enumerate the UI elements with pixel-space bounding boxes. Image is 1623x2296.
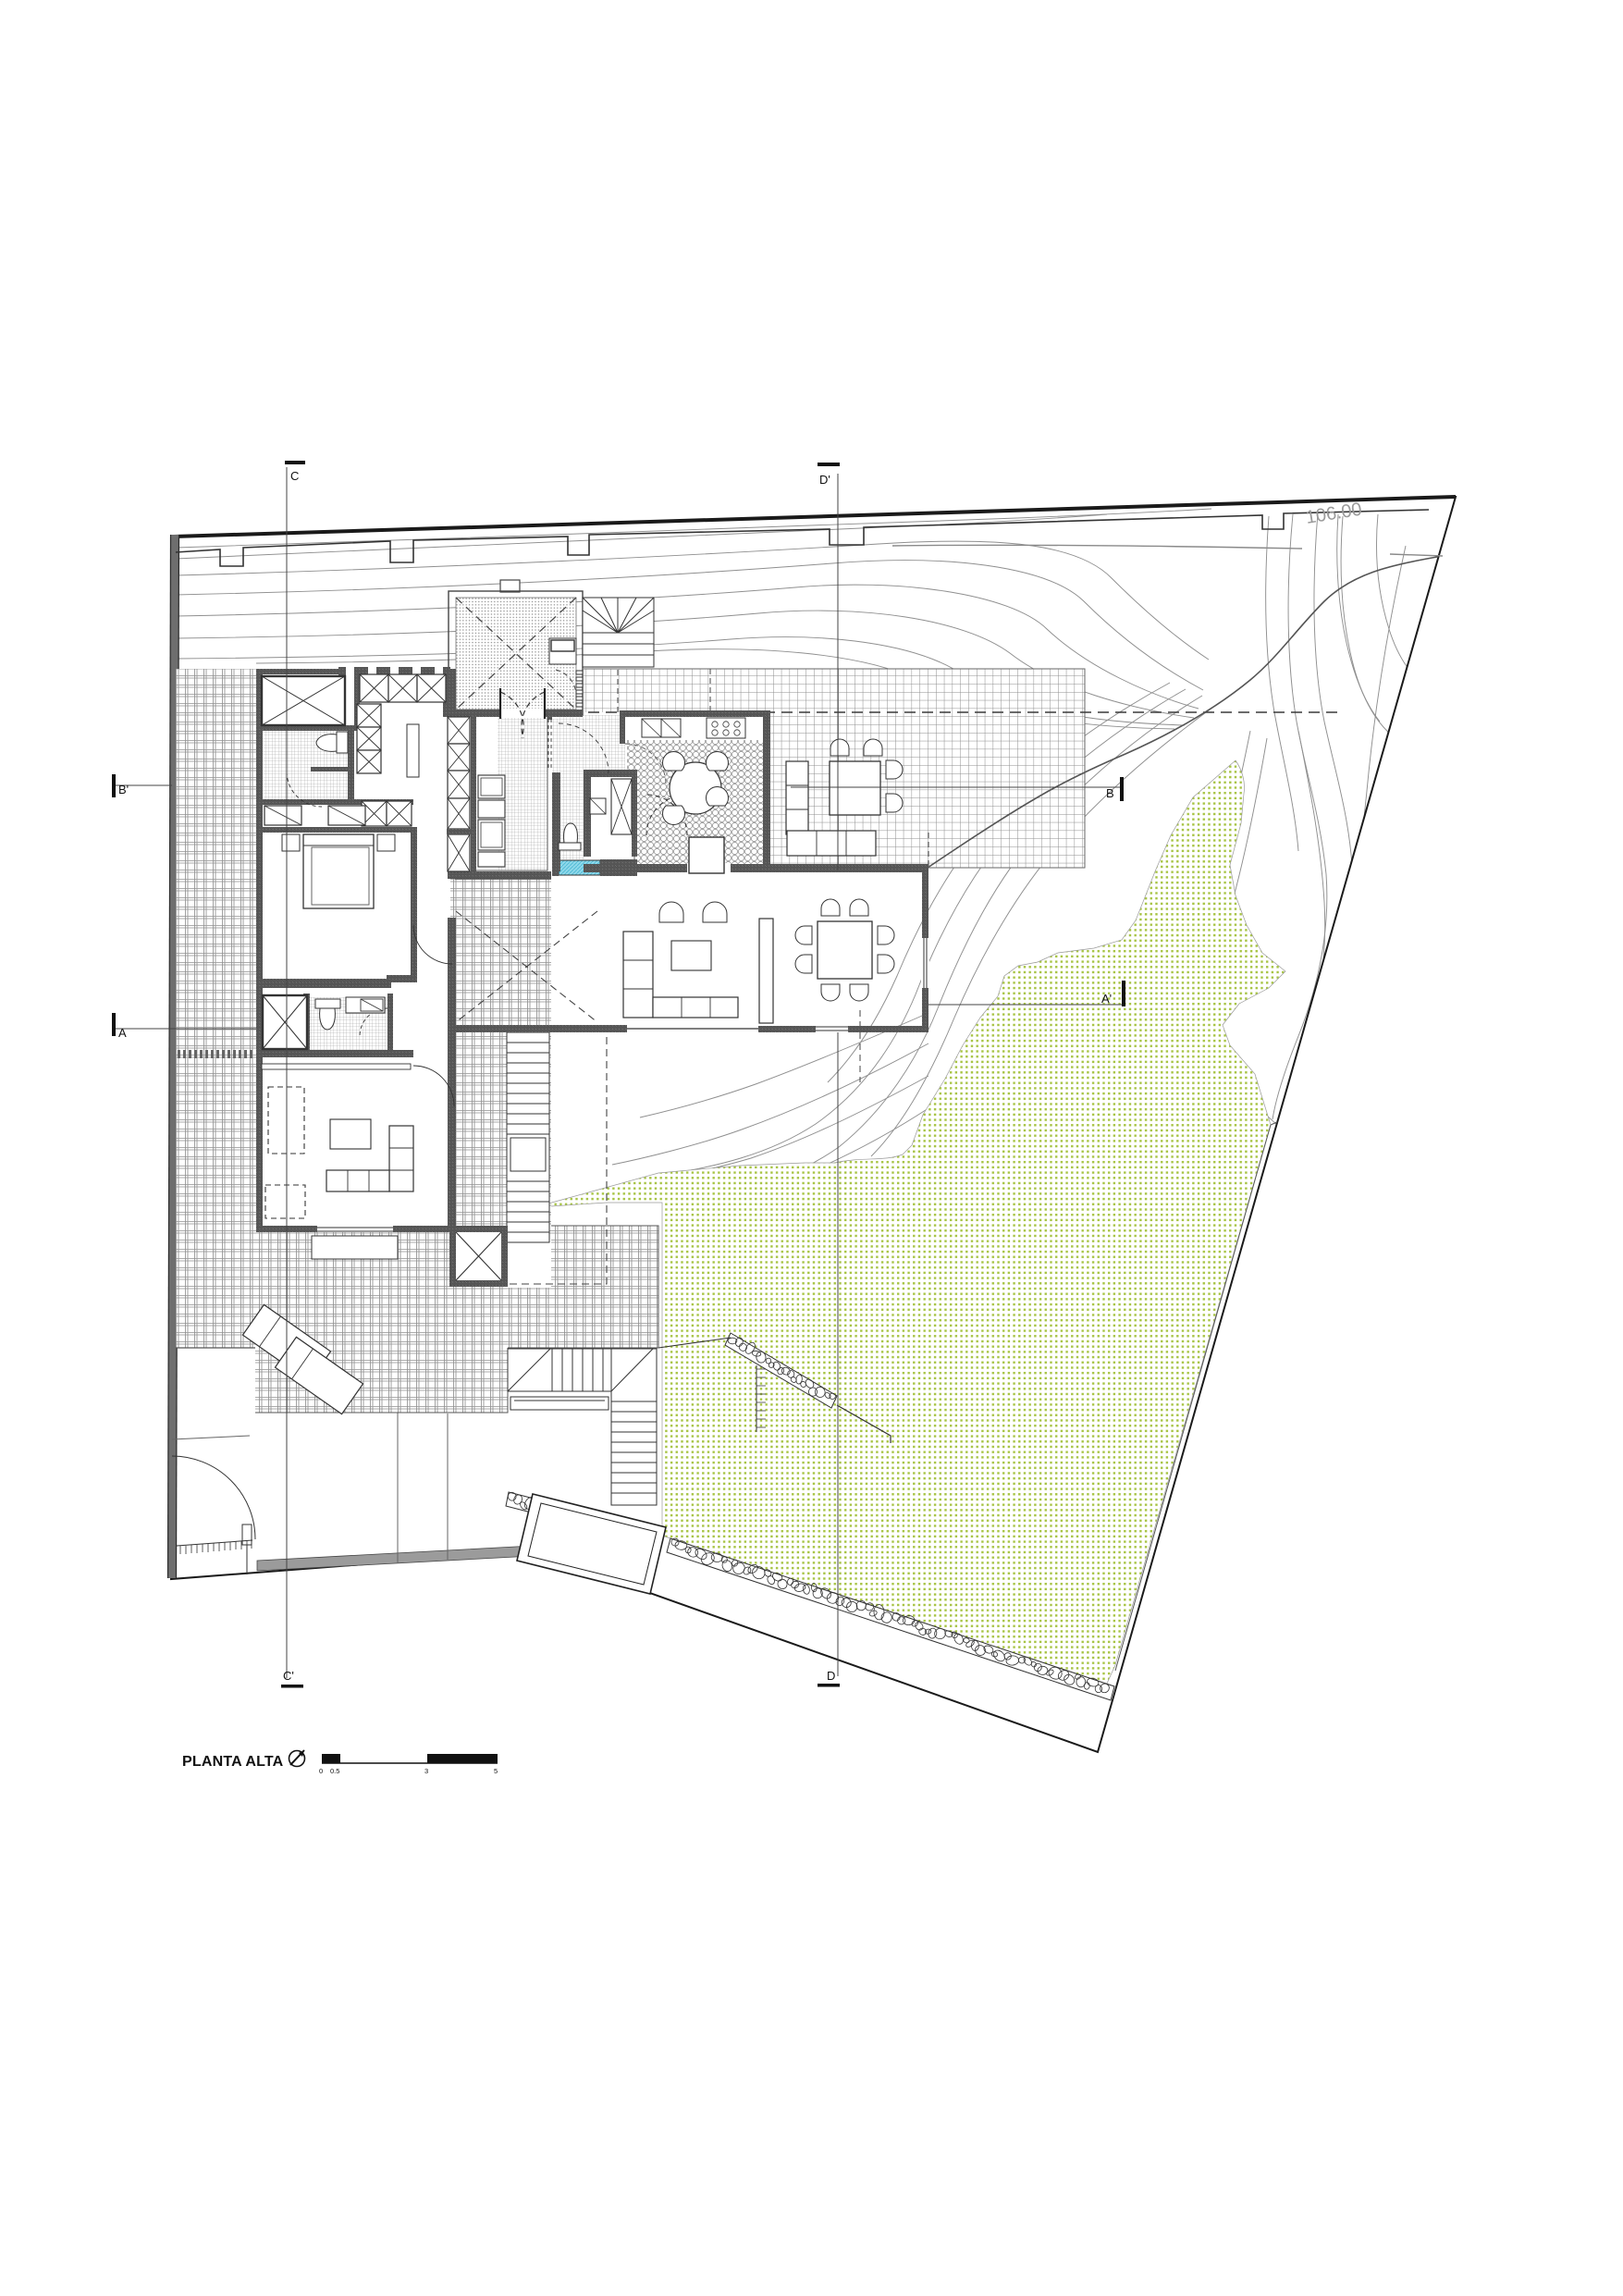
svg-text:A': A' [1101,992,1112,1006]
svg-text:A: A [118,1026,127,1040]
svg-text:C': C' [283,1669,294,1683]
svg-text:0: 0 [319,1767,323,1775]
svg-text:PLANTA ALTA: PLANTA ALTA [182,1754,284,1770]
svg-text:3: 3 [424,1767,428,1775]
svg-text:B': B' [118,783,129,796]
svg-text:5: 5 [494,1767,498,1775]
svg-text:0.5: 0.5 [330,1767,339,1775]
svg-text:D: D [827,1669,835,1683]
svg-text:D': D' [819,473,830,487]
svg-text:C: C [290,469,299,483]
svg-text:B: B [1106,786,1114,800]
